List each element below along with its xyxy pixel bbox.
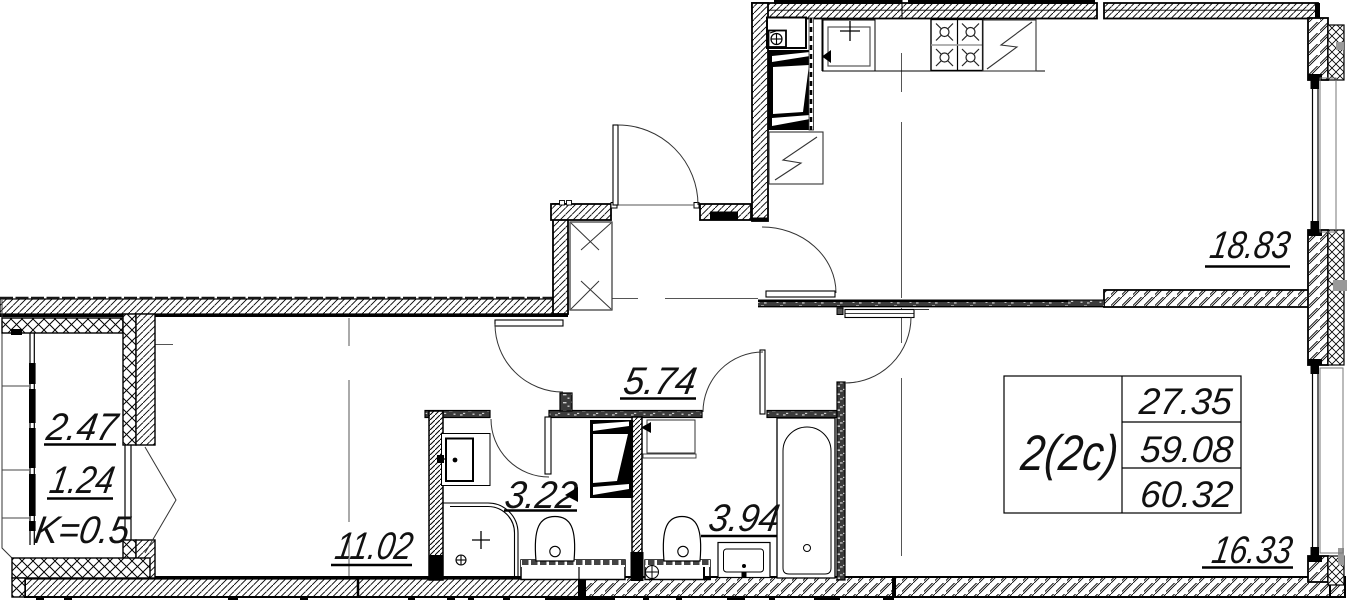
svg-text:11.02: 11.02	[332, 525, 416, 568]
svg-text:1.24: 1.24	[47, 459, 118, 502]
svg-text:K=0.5: K=0.5	[31, 509, 134, 552]
svg-text:18.83: 18.83	[1207, 224, 1294, 267]
svg-text:16.33: 16.33	[1209, 529, 1296, 572]
svg-text:2(2с): 2(2с)	[1018, 425, 1122, 481]
svg-text:5.74: 5.74	[620, 360, 700, 403]
svg-text:60.32: 60.32	[1139, 474, 1236, 515]
svg-text:27.35: 27.35	[1137, 381, 1235, 422]
svg-text:2.47: 2.47	[43, 406, 123, 449]
svg-text:59.08: 59.08	[1139, 429, 1236, 470]
svg-text:3.94: 3.94	[706, 497, 783, 540]
